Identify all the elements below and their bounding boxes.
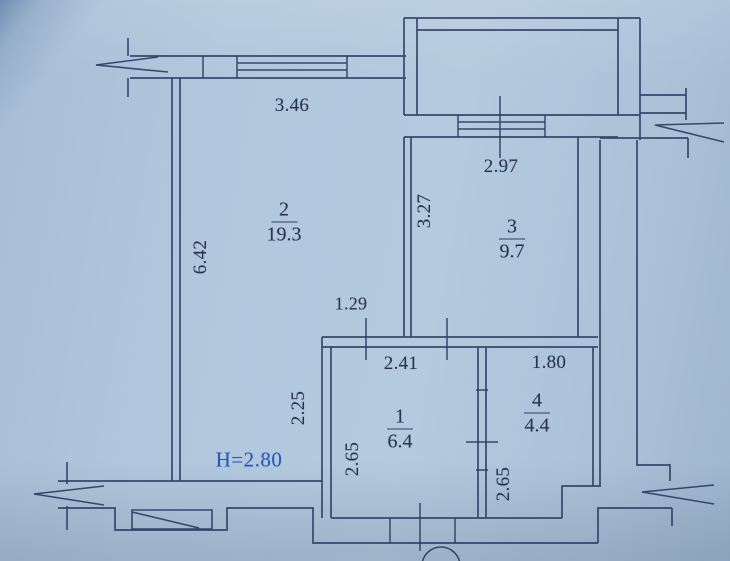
dim-room4-left-height: 2.65 xyxy=(493,467,515,501)
break-symbols xyxy=(34,38,724,530)
ceiling-height-label: H=2.80 xyxy=(216,448,283,473)
plan-linework xyxy=(0,0,730,561)
room-2-label: 2 19.3 xyxy=(267,199,302,246)
room-1-label: 1 6.4 xyxy=(387,406,413,453)
duct-hatch xyxy=(132,510,212,529)
window-glyphs xyxy=(203,56,545,158)
floor-plan: 3.46 2.97 6.42 3.27 1.29 2.41 1.80 2.25 … xyxy=(0,0,730,561)
dim-room3-window-width: 2.97 xyxy=(484,156,518,178)
room-1-number: 1 xyxy=(387,406,413,430)
room-2-area: 19.3 xyxy=(267,223,302,246)
room-4-area: 4.4 xyxy=(525,414,550,437)
dim-room2-right-height: 2.25 xyxy=(288,391,310,425)
room-4-label: 4 4.4 xyxy=(524,390,550,437)
door-swing-arc xyxy=(422,547,460,561)
walls xyxy=(58,18,688,543)
room-2-number: 2 xyxy=(271,199,297,223)
room-3-area: 9.7 xyxy=(500,240,525,263)
dim-hall-left-height: 2.65 xyxy=(342,442,364,476)
dim-top-window-width: 3.46 xyxy=(275,95,309,117)
room-3-number: 3 xyxy=(499,216,525,240)
dim-left-wall-height: 6.42 xyxy=(190,240,212,274)
room-4-number: 4 xyxy=(524,390,550,414)
dim-hall-opening: 1.29 xyxy=(335,294,368,315)
dim-hall-top-width: 2.41 xyxy=(384,353,418,375)
dim-room4-top-width: 1.80 xyxy=(532,352,566,374)
room-3-label: 3 9.7 xyxy=(499,216,525,263)
dim-room3-left-height: 3.27 xyxy=(414,194,436,228)
room-1-area: 6.4 xyxy=(388,430,413,453)
